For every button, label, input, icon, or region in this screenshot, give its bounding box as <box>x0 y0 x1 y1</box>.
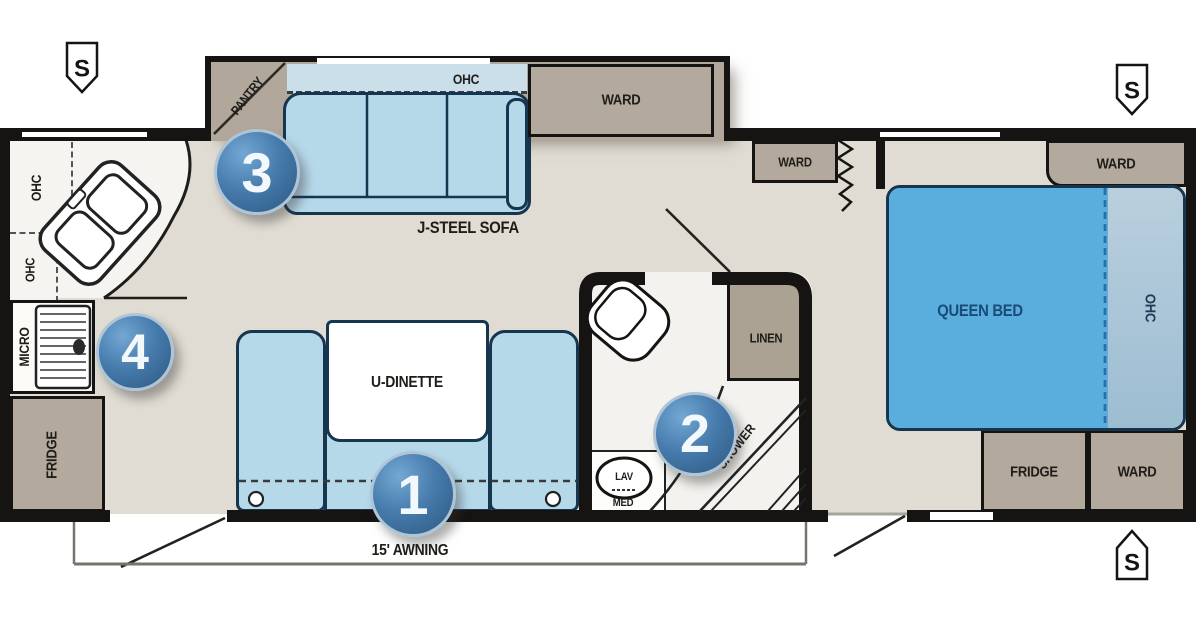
dinette-label: U-DINETTE <box>371 374 443 392</box>
callout-4-number: 4 <box>121 323 149 381</box>
ohc-label-sofa: OHC <box>453 71 479 87</box>
bathroom-wall-right <box>712 279 806 513</box>
speaker-label: S <box>74 55 90 82</box>
zigzag-symbol <box>838 140 852 211</box>
speaker-label: S <box>1124 77 1140 104</box>
speaker-marker-top-left: S <box>67 43 97 92</box>
callout-2-number: 2 <box>680 403 710 465</box>
fridge-label-bedroom: FRIDGE <box>1010 464 1058 481</box>
dinette-grommet-right <box>546 492 560 506</box>
kitchen-sink <box>34 155 167 291</box>
dinette-grommet-left <box>249 492 263 506</box>
bathroom-door-swing <box>666 209 730 272</box>
ward-label-bedroom-top: WARD <box>1097 156 1136 173</box>
entry-door-swing <box>121 518 225 567</box>
callout-3-number: 3 <box>241 140 272 205</box>
lav-label: LAV <box>615 471 633 483</box>
ward-label-hall: WARD <box>778 155 812 170</box>
micro-label: MICRO <box>16 327 32 366</box>
floorplan-canvas: SHOWER S S S PANTRY OHC WARD J-STEEL SOF… <box>0 0 1200 628</box>
range-icon <box>36 306 90 388</box>
queen-bed-label: QUEEN BED <box>937 301 1023 321</box>
callout-3: 3 <box>214 129 300 215</box>
ohc-label-left-2: OHC <box>23 258 38 282</box>
ohc-label-bedroom: OHC <box>1142 294 1159 322</box>
sofa-label: J-STEEL SOFA <box>417 218 519 238</box>
awning-label: 15' AWNING <box>372 542 449 560</box>
callout-2: 2 <box>653 392 737 476</box>
linen-label: LINEN <box>750 331 783 346</box>
callout-4: 4 <box>96 313 174 391</box>
bedroom-door-swing <box>834 516 905 556</box>
med-label: MED <box>613 497 633 509</box>
fridge-label-left: FRIDGE <box>44 431 61 479</box>
ward-label-slide: WARD <box>602 92 641 109</box>
speaker-label: S <box>1124 549 1140 576</box>
ward-label-bedroom-bottom: WARD <box>1118 464 1157 481</box>
speaker-marker-top-right: S <box>1117 65 1147 114</box>
ohc-label-left-1: OHC <box>28 175 44 201</box>
speaker-marker-bottom-right: S <box>1117 531 1147 579</box>
callout-1: 1 <box>370 451 456 537</box>
callout-1-number: 1 <box>397 462 428 527</box>
